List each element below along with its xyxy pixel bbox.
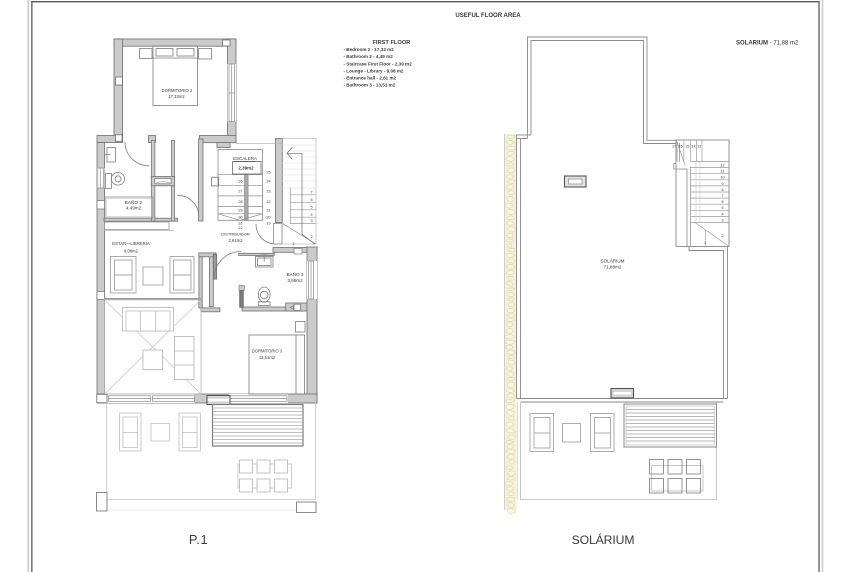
svg-text:6: 6 [721, 200, 723, 204]
svg-text:1: 1 [704, 241, 706, 245]
svg-text:27: 27 [238, 190, 242, 194]
svg-text:BAÑO 3: BAÑO 3 [287, 271, 304, 277]
svg-text:7: 7 [721, 194, 723, 198]
svg-text:DISTRIBUIDOR: DISTRIBUIDOR [221, 232, 250, 237]
svg-text:17: 17 [672, 145, 676, 149]
svg-text:26: 26 [238, 180, 242, 184]
svg-text:5: 5 [721, 206, 723, 210]
svg-text:ESCALERA: ESCALERA [233, 156, 257, 161]
svg-text:9: 9 [721, 182, 723, 186]
svg-text:24: 24 [266, 180, 270, 184]
svg-text:20: 20 [266, 216, 270, 220]
svg-text:7: 7 [311, 191, 313, 195]
svg-text:DORMITORIO 2: DORMITORIO 2 [162, 88, 193, 93]
svg-text:ESTAR—LIBRERIA: ESTAR—LIBRERIA [112, 241, 150, 246]
svg-text:31: 31 [238, 222, 242, 226]
svg-text:2,81m2: 2,81m2 [229, 238, 244, 243]
svg-text:4: 4 [721, 212, 723, 216]
svg-text:11: 11 [721, 170, 725, 174]
svg-text:19: 19 [266, 222, 270, 226]
svg-text:- Bathroom 3 - 13,51 m2: - Bathroom 3 - 13,51 m2 [344, 82, 396, 87]
svg-text:9,08m2: 9,08m2 [124, 249, 139, 254]
svg-text:4,49m2: 4,49m2 [126, 206, 142, 211]
svg-text:- Entrance hall - 2,81 m2: - Entrance hall - 2,81 m2 [344, 76, 397, 81]
svg-text:2: 2 [311, 235, 313, 239]
svg-text:22: 22 [266, 200, 270, 204]
svg-text:30: 30 [238, 216, 242, 220]
svg-text:10: 10 [720, 176, 724, 180]
svg-text:8: 8 [721, 188, 723, 192]
svg-text:23: 23 [266, 190, 270, 194]
svg-text:DORMITORIO 3: DORMITORIO 3 [252, 349, 283, 354]
svg-text:- Bathroom 2 - 4,49 m2: - Bathroom 2 - 4,49 m2 [344, 54, 394, 59]
svg-text:3,95m2: 3,95m2 [287, 278, 303, 283]
svg-text:15: 15 [685, 145, 689, 149]
svg-text:14: 14 [692, 145, 696, 149]
svg-text:13: 13 [697, 145, 701, 149]
svg-text:SOLÁRIUM: SOLÁRIUM [572, 532, 635, 547]
svg-text:- Bedroom 2 - 17,33 m2: - Bedroom 2 - 17,33 m2 [344, 47, 395, 52]
svg-text:- Staircase First Floor - 2,39: - Staircase First Floor - 2,39 m2 [344, 61, 413, 66]
svg-text:FIRST FLOOR: FIRST FLOOR [372, 40, 410, 46]
svg-text:1: 1 [292, 242, 294, 246]
svg-text:3: 3 [721, 218, 723, 222]
svg-text:3: 3 [311, 219, 313, 223]
svg-text:BAÑO 2: BAÑO 2 [125, 199, 143, 205]
svg-text:29: 29 [238, 209, 242, 213]
svg-text:P.1: P.1 [189, 532, 208, 547]
svg-text:6: 6 [311, 198, 313, 202]
svg-text:5: 5 [311, 206, 313, 210]
svg-text:28: 28 [238, 200, 242, 204]
svg-text:22: 22 [238, 226, 242, 230]
svg-text:21: 21 [266, 209, 270, 213]
svg-text:2,39m2: 2,39m2 [238, 166, 254, 171]
svg-text:- Lounge - Library - 9,08 m2: - Lounge - Library - 9,08 m2 [344, 69, 404, 74]
svg-text:71,88m2: 71,88m2 [604, 265, 622, 270]
svg-text:25: 25 [266, 171, 270, 175]
svg-text:16: 16 [679, 145, 683, 149]
svg-text:17,33m2: 17,33m2 [168, 94, 185, 99]
svg-text:12: 12 [720, 164, 724, 168]
svg-text:SOLÁRIUM: SOLÁRIUM [601, 258, 625, 264]
svg-text:13,51m2: 13,51m2 [259, 355, 276, 360]
svg-text:4: 4 [311, 213, 313, 217]
svg-text:2: 2 [721, 234, 723, 238]
svg-text:USEFUL FLOOR AREA: USEFUL FLOOR AREA [455, 12, 521, 19]
svg-text:SOLARIUM - 71,88 m2: SOLARIUM - 71,88 m2 [736, 40, 799, 46]
